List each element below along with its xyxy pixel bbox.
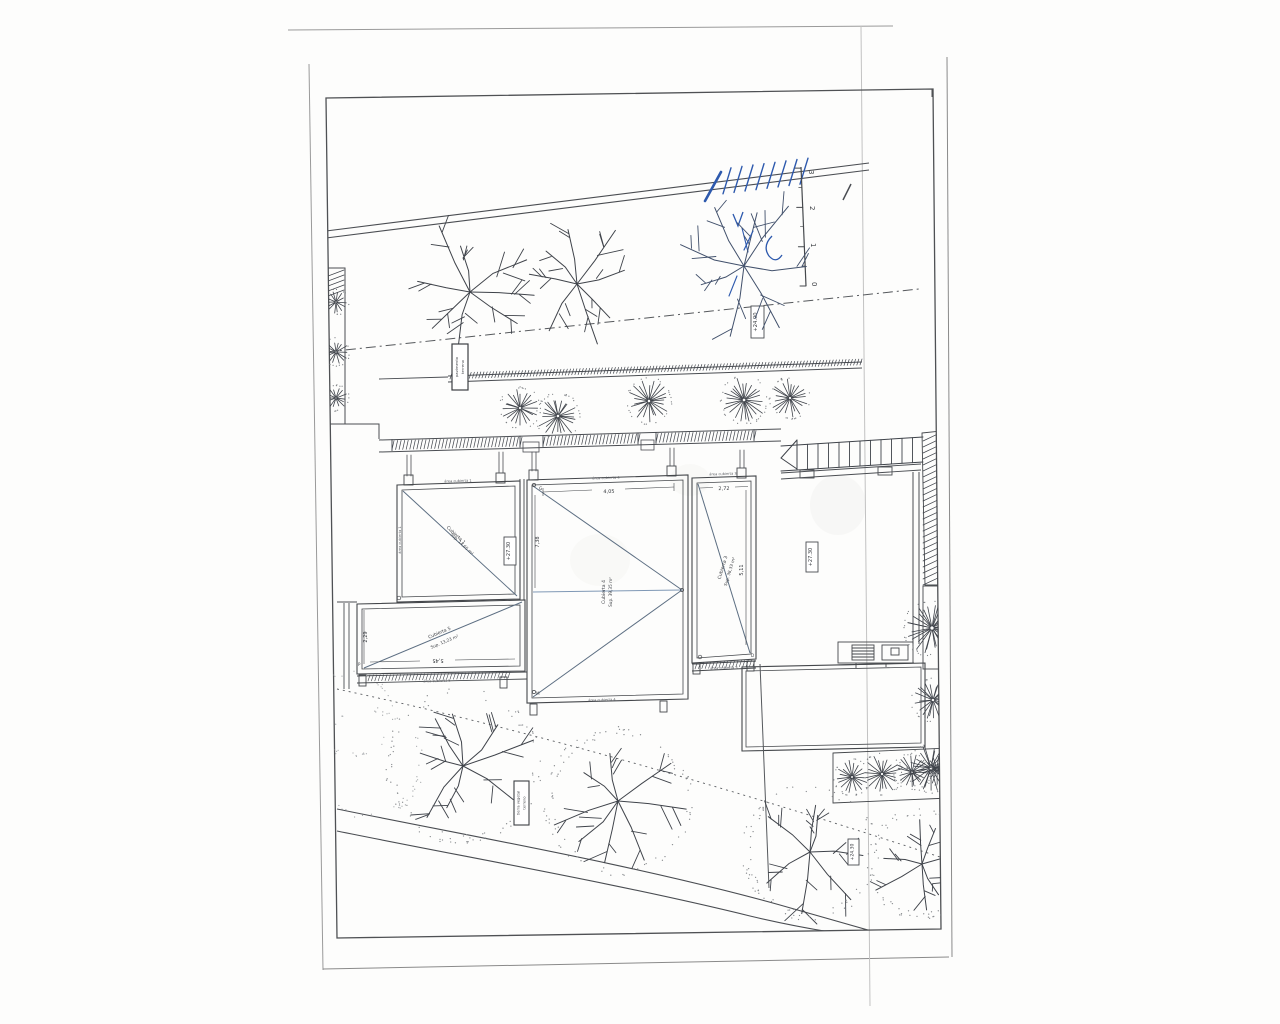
corner-mark-g: G	[539, 486, 542, 491]
scanned-site-plan-page: 0 1 2 3 +24.90	[0, 0, 1280, 1024]
svg-text:+27.30: +27.30	[808, 548, 814, 567]
courtyard: +27.30 +27.30	[504, 431, 959, 888]
parapet-post	[500, 677, 507, 688]
svg-text:5,45: 5,45	[432, 657, 443, 663]
building-roof-4: Cubierta 4 Sup. 39,35 m² 4,05 7,38 área …	[527, 475, 688, 703]
roof-3-edge-label-top: área cubierta 3	[709, 472, 737, 477]
parapet-post	[660, 701, 667, 712]
dim-c5-width: 5,45	[370, 657, 515, 663]
site-plan-drawing: 0 1 2 3 +24.90	[0, 0, 1280, 1024]
roof-4-edge-label-top: área cubierta 4	[592, 476, 620, 481]
building-roof-3: Cubierta 3 Sup. 38,33 m² 2,72 5,11 área …	[692, 472, 756, 671]
svg-text:terreno: terreno	[460, 359, 465, 374]
surface-label-box-lower: tierra vegetal terreno	[514, 781, 529, 825]
hedge-step	[345, 424, 379, 439]
svg-text:5,11: 5,11	[739, 564, 745, 575]
elevation-label-roof-gap: +27.30	[504, 537, 516, 565]
lower-patio	[742, 663, 925, 751]
page-edge-top	[288, 26, 893, 30]
blue-pen-marks	[705, 158, 808, 260]
upper-garden: 0 1 2 3 +24.90	[321, 158, 919, 439]
svg-text:pavimento: pavimento	[454, 356, 459, 377]
elevation-label-upper-garden: +24.90	[751, 306, 764, 338]
roof-4-name: Cubierta 4	[601, 580, 607, 604]
roof-4-edge-label-bottom: área cubierta 4	[588, 698, 616, 703]
scale-tick-2: 2	[808, 206, 816, 210]
svg-text:+27.30: +27.30	[506, 542, 512, 561]
svg-text:tierra vegetal: tierra vegetal	[517, 791, 521, 815]
dim-c4-width: 4,05	[543, 483, 674, 496]
garden-wall-west	[337, 602, 357, 689]
svg-text:terreno: terreno	[523, 796, 527, 809]
svg-text:+24.30: +24.30	[850, 843, 856, 860]
drawing-area: 0 1 2 3 +24.90	[310, 158, 977, 937]
corner-mark-d: D	[751, 653, 754, 658]
roof-1-edge-label-top: área cubierta 1	[444, 479, 472, 484]
parapet-post	[359, 675, 366, 686]
graphic-scale-bar: 0 1 2 3	[795, 167, 818, 286]
shrub-row	[500, 377, 810, 437]
page-edge-bottom	[323, 957, 949, 969]
roof-1-area: Sup. 14,65 m²	[449, 532, 474, 556]
corner-mark-m: M	[536, 691, 540, 696]
lower-garden: tierra vegetal terreno +24.30	[310, 671, 977, 937]
page-edge-right	[947, 57, 952, 957]
party-wall-1-4	[520, 479, 524, 600]
scale-tick-3: 3	[807, 170, 815, 174]
left-hedge-strip	[321, 268, 350, 424]
terrace-boundary-line	[760, 664, 769, 888]
exterior-stair	[781, 437, 923, 471]
chimney	[404, 475, 413, 485]
surface-label-box-upper: pavimento terreno	[452, 344, 468, 390]
roof-posts	[359, 466, 754, 715]
scale-tick-1: 1	[809, 243, 817, 247]
deciduous-trees-upper	[409, 192, 810, 344]
boundary-fence-line	[326, 163, 869, 238]
shrub-bed-box	[833, 748, 953, 803]
chimney	[529, 470, 538, 480]
elevation-label-lower-garden: +24.30	[848, 839, 859, 865]
corner-mark-p: P	[358, 662, 361, 667]
parapet-post	[693, 664, 700, 674]
page-edge-left	[309, 64, 323, 970]
dim-c5-depth: 2,29	[363, 631, 369, 642]
roof-1-edge-label-left: área cubierta 1	[398, 526, 402, 553]
svg-text:7,38: 7,38	[535, 536, 541, 547]
deciduous-trees-lower	[310, 671, 977, 924]
parapet-post	[530, 704, 537, 715]
svg-text:2,72: 2,72	[718, 486, 729, 492]
elevation-label-terrace: +27.30	[806, 542, 818, 572]
dim-c4-depth: 7,38	[535, 495, 541, 588]
roof-4-area: Sup. 39,35 m²	[608, 577, 613, 607]
scale-tick-0: 0	[810, 282, 818, 286]
building-roof-1: Cubierta 1 Sup. 14,65 m² área cubierta 1…	[397, 479, 520, 602]
sidewalk	[379, 429, 781, 452]
svg-text:4,05: 4,05	[603, 489, 614, 495]
setback-dashdot-line	[326, 289, 919, 352]
